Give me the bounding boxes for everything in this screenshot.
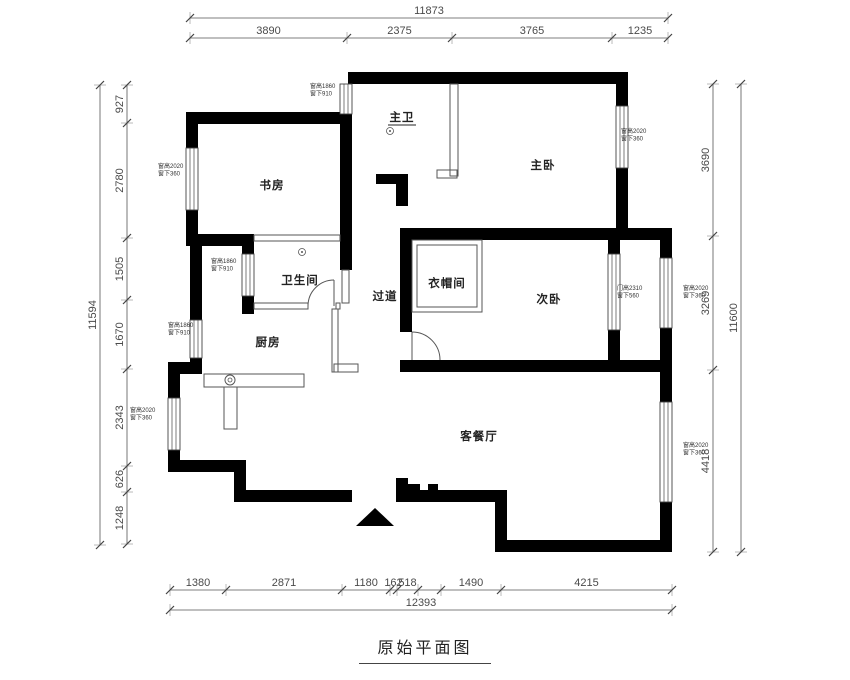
dim-label: 3765 — [520, 25, 544, 37]
dim-label: 11594 — [87, 300, 99, 330]
wall-segment — [340, 234, 352, 270]
wall-segment — [234, 490, 352, 502]
room-label-cloakroom: 衣帽间 — [428, 276, 466, 290]
wall-segment — [400, 240, 412, 332]
door-arc — [412, 332, 440, 360]
window-annotation: 门高2310 — [617, 284, 643, 292]
floor-drain-icon — [299, 249, 306, 256]
wall-segment — [616, 168, 628, 228]
dim-label: 2375 — [387, 25, 411, 37]
window-annotation: 窗下910 — [168, 329, 191, 337]
window-annotation: 窗高2020 — [130, 406, 156, 414]
wall-segment — [608, 330, 620, 360]
drawing-title: 原始平面图 — [0, 634, 850, 664]
window-symbol — [186, 148, 198, 210]
wall-segment — [400, 228, 672, 240]
window-symbol — [242, 254, 254, 296]
floor-plan-drawing: 主卫书房主卧卫生间衣帽间次卧过道厨房客餐厅窗高1860窗下910窗高2020窗下… — [0, 0, 850, 680]
room-label-bathroom: 卫生间 — [281, 273, 319, 287]
window-annotation: 窗高1860 — [168, 321, 194, 329]
dim-label: 4418 — [700, 449, 712, 473]
entrance-arrow-icon — [356, 508, 394, 526]
wall-segment — [190, 310, 202, 320]
wall-segment — [190, 246, 202, 310]
thin-partition — [437, 170, 457, 178]
thin-partition — [254, 235, 340, 241]
room-label-corridor: 过道 — [373, 289, 398, 303]
wall-segment — [242, 246, 254, 254]
wall-segment — [616, 84, 628, 106]
dim-label: 518 — [398, 577, 416, 589]
window-annotation: 窗高2020 — [621, 127, 647, 135]
thin-partition — [336, 303, 340, 309]
wall-segment — [186, 112, 198, 148]
dim-label: 2780 — [114, 168, 126, 192]
room-label-living-dining: 客餐厅 — [459, 429, 498, 443]
window-annotation: 窗高2020 — [683, 441, 709, 449]
dim-label: 2871 — [272, 577, 296, 589]
window-annotation: 窗下360 — [158, 170, 181, 178]
dim-label: 1235 — [628, 25, 652, 37]
thin-partition — [204, 374, 304, 387]
dim-label: 4215 — [574, 577, 598, 589]
window-symbol — [608, 254, 620, 330]
window-annotation: 窗下560 — [617, 292, 640, 300]
wall-segment — [608, 240, 620, 254]
wall-segment — [495, 540, 672, 552]
window-annotation: 窗下910 — [310, 90, 333, 98]
wall-segment — [396, 184, 408, 206]
dim-label: 1380 — [186, 577, 210, 589]
dim-label: 1490 — [459, 577, 483, 589]
dim-label: 1248 — [114, 506, 126, 530]
wall-segment — [400, 360, 672, 372]
thin-partition — [412, 240, 482, 312]
wall-segment — [242, 296, 254, 314]
window-symbol — [340, 84, 352, 114]
dim-label: 12393 — [406, 597, 437, 609]
wall-segment — [168, 362, 202, 374]
dim-label: 11873 — [414, 5, 444, 17]
sink-icon — [228, 378, 232, 382]
wall-segment — [186, 234, 254, 246]
dim-label: 1180 — [354, 577, 378, 589]
window-annotation: 窗下360 — [621, 135, 644, 143]
room-label-master-bath: 主卫 — [390, 110, 415, 124]
window-annotation: 窗下360 — [130, 414, 153, 422]
thin-partition — [450, 84, 458, 176]
wall-segment — [396, 490, 507, 502]
dim-label: 11600 — [728, 303, 740, 333]
wall-segment — [340, 114, 352, 240]
dim-label: 3690 — [700, 148, 712, 172]
dimension-chains: 1187338902375376512351159492727801505167… — [87, 5, 747, 616]
thin-partition — [254, 303, 308, 309]
window-symbol — [168, 398, 180, 450]
dim-label: 927 — [114, 95, 126, 113]
sink-icon — [225, 375, 235, 385]
dim-label: 1670 — [114, 322, 126, 346]
window-symbol — [660, 402, 672, 502]
thin-partition — [224, 387, 237, 429]
wall-segment — [190, 112, 352, 124]
dim-label: 1505 — [114, 257, 126, 281]
room-label-kitchen: 厨房 — [256, 335, 281, 349]
dim-label: 2343 — [114, 405, 126, 429]
window-annotation: 窗下910 — [211, 265, 234, 273]
room-label-study: 书房 — [260, 178, 285, 192]
dim-label: 626 — [114, 470, 126, 488]
window-annotation: 窗高1860 — [211, 257, 237, 265]
thin-partition — [342, 270, 349, 303]
window-symbols — [168, 84, 672, 502]
window-symbol — [660, 258, 672, 328]
thin-partition — [332, 309, 338, 372]
wall-segment — [660, 502, 672, 552]
floor-drain-icon — [387, 128, 394, 135]
wall-segment — [348, 72, 628, 84]
drawing-title-text: 原始平面图 — [359, 634, 490, 664]
window-annotation: 窗高2020 — [158, 162, 184, 170]
wall-segment — [168, 374, 180, 398]
room-label-master-bedroom: 主卧 — [531, 158, 556, 172]
room-label-second-bedroom: 次卧 — [537, 292, 562, 306]
thin-partition — [417, 245, 477, 307]
wall-segment — [376, 174, 408, 184]
window-annotation: 窗高1860 — [310, 82, 336, 90]
window-annotations: 窗高1860窗下910窗高2020窗下360窗高2020窗下360窗高1860窗… — [130, 82, 709, 457]
dim-label: 3269 — [700, 291, 712, 315]
dim-label: 3890 — [256, 25, 280, 37]
